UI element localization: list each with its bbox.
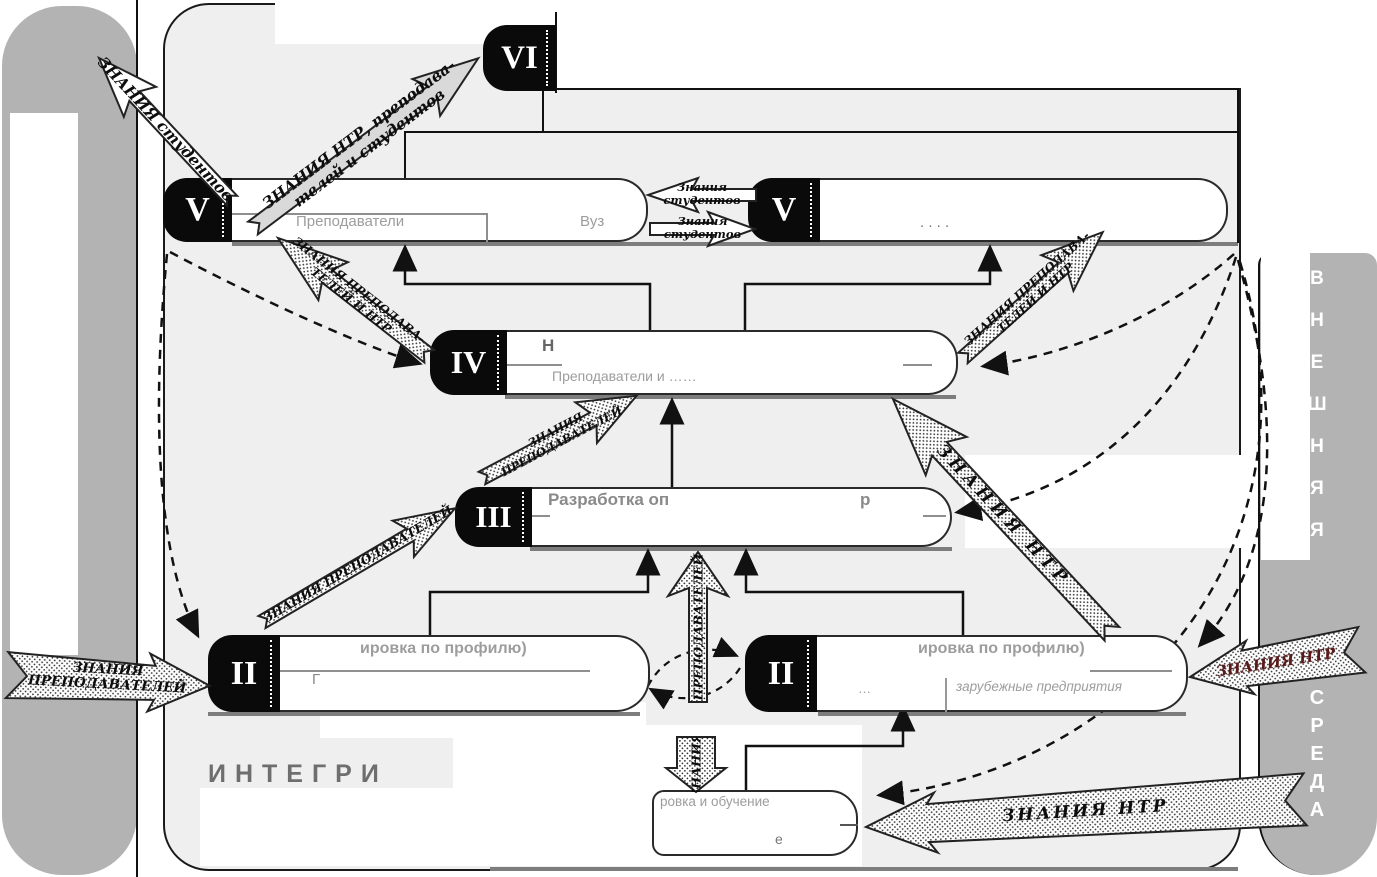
- stage-tab-label: IV: [451, 344, 487, 381]
- arrow-students-knowledge-right: Знания студентов: [650, 211, 755, 247]
- tab-dotted-separator: [522, 492, 524, 542]
- arrow-prep-knowledge-vertical-top: ПРЕПОДАВАТЕЛЕЙ: [668, 552, 728, 702]
- box-divider: [507, 364, 562, 366]
- stage-tab-label: VI: [501, 40, 538, 77]
- box-divider: [923, 515, 946, 517]
- stage-tab-label: II: [231, 655, 257, 693]
- stage-tab-label: V: [772, 191, 797, 229]
- arrow-students-knowledge-left: Знания студентов: [648, 177, 756, 213]
- retraining-box-fragment: е: [775, 831, 783, 847]
- box-divider: [532, 515, 550, 517]
- stage-tab-ii-right: II: [745, 635, 817, 712]
- box-tick: [945, 678, 947, 712]
- stage-tab-ii-left: II: [208, 635, 280, 712]
- box-divider: [280, 670, 590, 672]
- tab-dotted-separator: [810, 183, 812, 237]
- stage-tab-vi: VI: [483, 25, 556, 91]
- stage-tab-label: II: [768, 655, 794, 693]
- box-divider: [840, 824, 858, 826]
- tab-dotted-separator: [807, 640, 809, 707]
- ii-right-box-prefix: …: [858, 681, 871, 696]
- tab-dotted-separator: [270, 640, 272, 707]
- iii-box-fragment: р: [860, 490, 870, 510]
- ii-left-box-title-fragment: ировка по профилю): [360, 640, 527, 658]
- box-stage-iv: [507, 330, 958, 395]
- iii-box-title-fragment: Разработка оп: [548, 490, 669, 510]
- box-tick: [486, 213, 488, 242]
- iv-box-title-fragment: Н: [542, 336, 554, 356]
- retraining-box-text: ровка и обучение: [660, 794, 770, 809]
- ii-right-box-text: зарубежные предприятия: [956, 679, 1122, 694]
- v-left-box-text: Преподаватели: [296, 213, 404, 230]
- integrated-label-fragment: ИНТЕГРИ: [208, 760, 468, 786]
- v-right-box-fragment: . . . .: [920, 214, 949, 231]
- stage-tab-label: III: [475, 499, 511, 535]
- stage-tab-v-right: V: [748, 178, 820, 242]
- box-stage-v-right: [820, 178, 1228, 242]
- arrow-prep-knowledge-in: ЗНАНИЯ ПРЕПОДАВАТЕЛЕЙ: [3, 644, 211, 717]
- tab-dotted-separator: [546, 30, 548, 86]
- integrated-label-text: ИНТЕГРИ: [208, 760, 388, 786]
- ii-left-box-fragment: Г: [312, 671, 320, 688]
- arrow-prep-knowledge-vertical-bottom: ЗНАНИЯ: [666, 737, 726, 792]
- diagram-canvas: В Н Е Ш Н Я Я С Р Е Д А: [0, 0, 1377, 877]
- ii-right-box-title-fragment: ировка по профилю): [918, 640, 1085, 658]
- tab-dotted-separator: [497, 335, 499, 390]
- box-divider: [903, 364, 932, 366]
- box-divider: [1090, 670, 1172, 672]
- v-left-box-fragment: Вуз: [580, 213, 604, 230]
